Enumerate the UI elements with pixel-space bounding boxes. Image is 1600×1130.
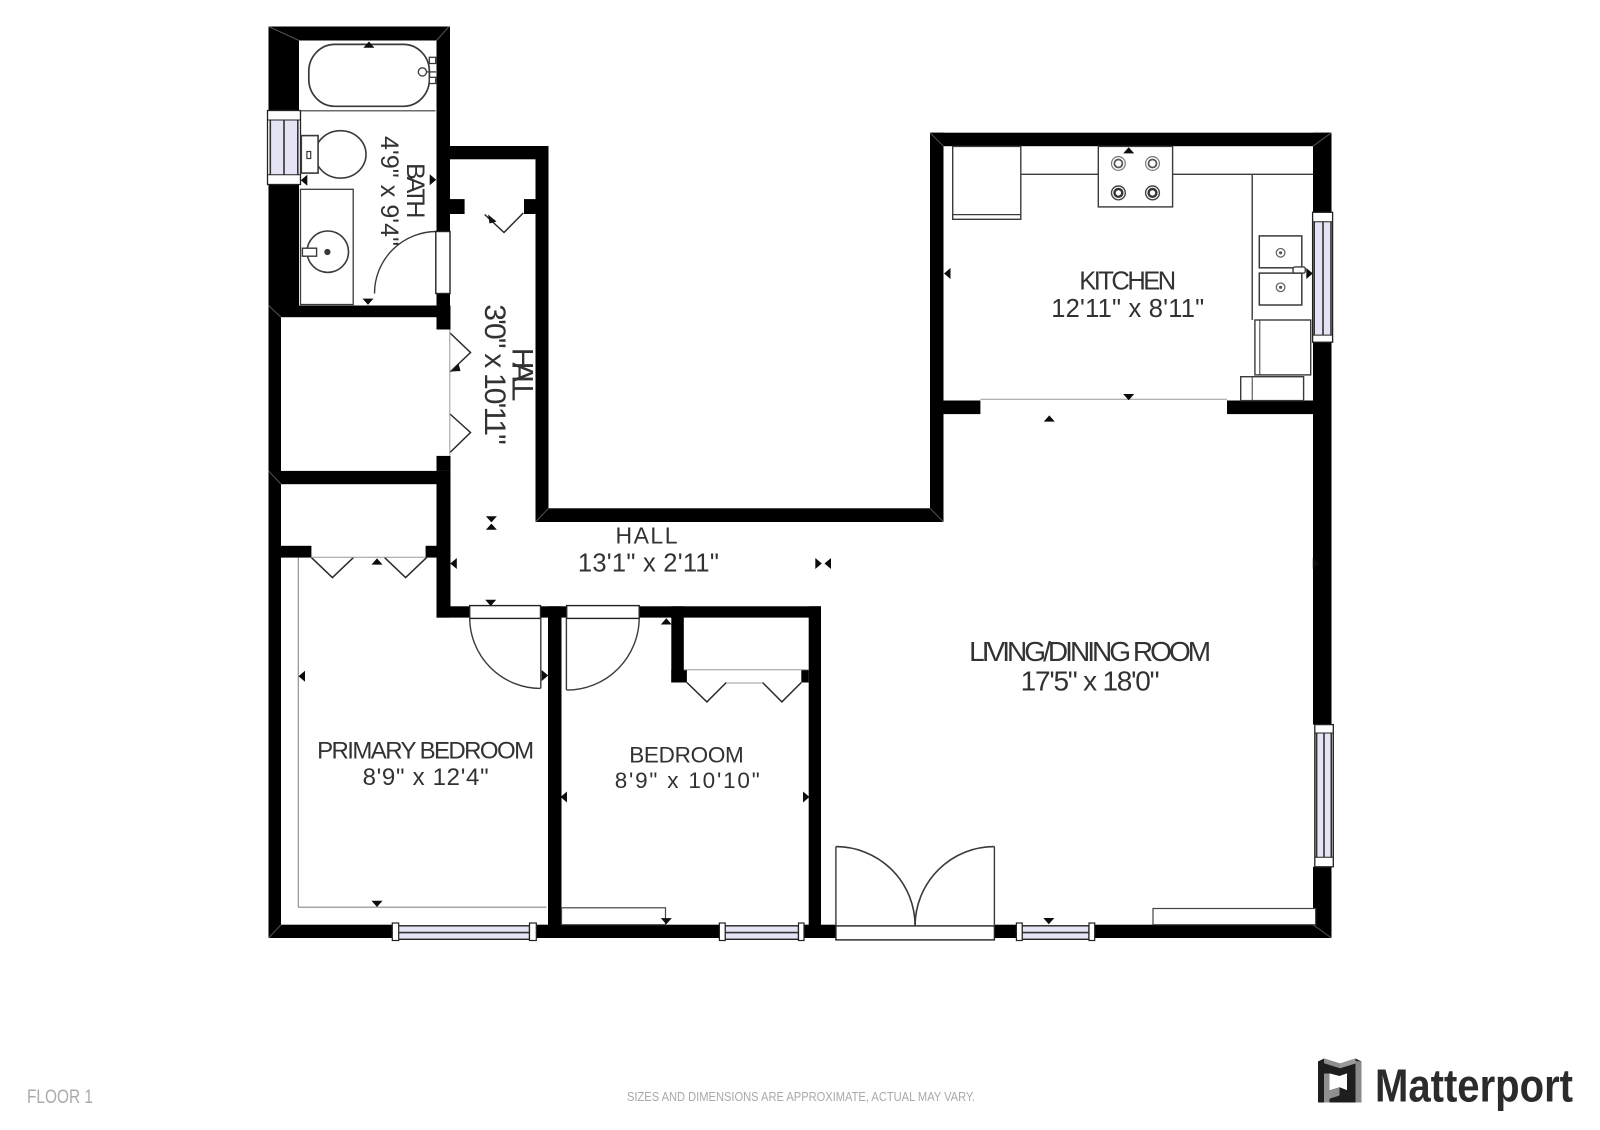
svg-text:SIZES AND DIMENSIONS ARE APPRO: SIZES AND DIMENSIONS ARE APPROXIMATE, AC… [627,1090,975,1104]
svg-text:KITCHEN: KITCHEN [1079,268,1176,296]
svg-text:3'0" x 10'11": 3'0" x 10'11" [478,304,511,445]
svg-text:LIVING/DINING ROOM: LIVING/DINING ROOM [969,636,1211,667]
svg-text:FLOOR 1: FLOOR 1 [27,1087,93,1108]
svg-text:BEDROOM: BEDROOM [629,742,744,767]
svg-text:PRIMARY BEDROOM: PRIMARY BEDROOM [317,738,534,765]
svg-text:12'11" x 8'11": 12'11" x 8'11" [1051,295,1204,323]
svg-text:HALL: HALL [616,523,678,549]
svg-text:8'9" x 12'4": 8'9" x 12'4" [363,764,489,791]
svg-text:17'5" x 18'0": 17'5" x 18'0" [1021,666,1160,697]
svg-text:Matterport: Matterport [1375,1060,1573,1112]
svg-text:BATH: BATH [401,163,429,218]
svg-text:13'1" x 2'11": 13'1" x 2'11" [578,549,719,577]
svg-text:4'9" x 9'4": 4'9" x 9'4" [375,136,403,246]
